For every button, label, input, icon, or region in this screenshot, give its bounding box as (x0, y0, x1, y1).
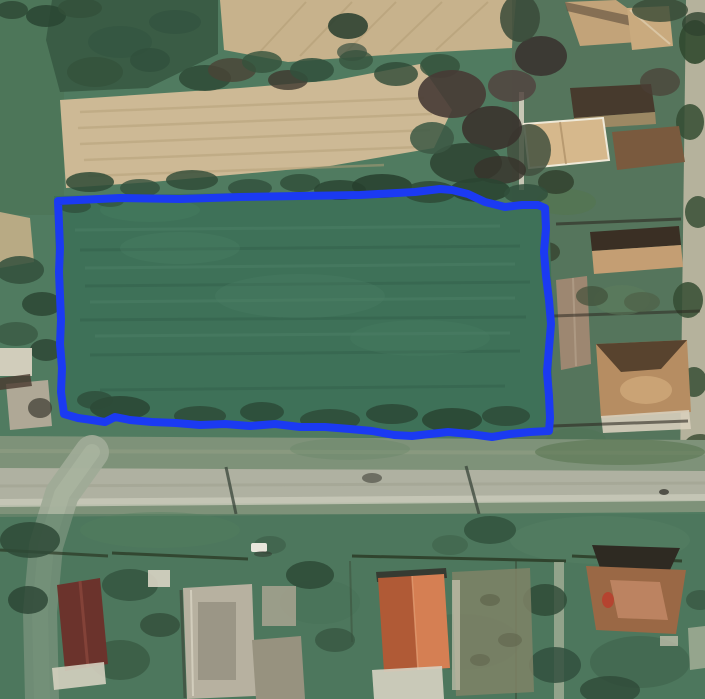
tree (640, 68, 680, 96)
shrub-shadow (77, 391, 113, 409)
tree (315, 628, 355, 652)
tree (130, 48, 170, 72)
tree (432, 535, 468, 555)
grass-patch (120, 232, 240, 264)
farm-building (262, 586, 296, 626)
courtyard (452, 568, 534, 696)
orange-roof-left (378, 576, 418, 672)
tree (140, 613, 180, 637)
verge-shade (535, 439, 705, 465)
road-blob (362, 473, 382, 483)
tree (464, 516, 516, 544)
roof-highlight (610, 580, 668, 620)
light-pad (688, 626, 705, 670)
roof-highlight (620, 376, 672, 404)
yard (80, 512, 240, 548)
verge-shade (290, 438, 410, 460)
white-hut (148, 570, 170, 587)
tree (529, 647, 581, 683)
satellite-scene (0, 0, 705, 699)
farm-building (252, 636, 305, 699)
farm-courtyard (198, 602, 236, 680)
tree (8, 586, 48, 614)
tree (339, 50, 373, 70)
tree (0, 522, 60, 558)
courtyard-mottle (480, 594, 500, 606)
satellite-image-viewport (0, 0, 705, 699)
tree (66, 172, 114, 192)
tree (67, 57, 123, 87)
tree (166, 170, 218, 190)
bottom-residential (0, 512, 705, 699)
courtyard-mottle (498, 633, 522, 647)
tree (374, 62, 418, 86)
tree (328, 13, 368, 39)
concrete-pad (372, 666, 444, 699)
tree (280, 174, 320, 192)
courtyard-wall (452, 580, 460, 690)
tree (624, 292, 660, 312)
courtyard-mottle (470, 654, 490, 666)
grass-patch (215, 274, 385, 318)
field-speckle (149, 10, 201, 34)
grass-patch (350, 320, 490, 356)
tree (410, 122, 454, 154)
shrub-shadow (240, 402, 284, 422)
parcel-field (54, 188, 552, 436)
red-detail (602, 592, 614, 608)
shrub-shadow (482, 406, 530, 426)
tree (28, 398, 52, 418)
white-car (251, 543, 267, 552)
shrub-shadow (366, 404, 418, 424)
tree (488, 70, 536, 102)
dark-roof-section (592, 545, 680, 570)
white-bit (660, 636, 678, 646)
tree (576, 286, 608, 306)
tree (515, 36, 567, 76)
tree (286, 561, 334, 589)
tree (242, 51, 282, 73)
house-roof-dark (570, 84, 655, 118)
white-building (0, 348, 32, 376)
tree (290, 58, 334, 82)
car-shadow (254, 551, 272, 557)
road-blob (659, 489, 669, 495)
